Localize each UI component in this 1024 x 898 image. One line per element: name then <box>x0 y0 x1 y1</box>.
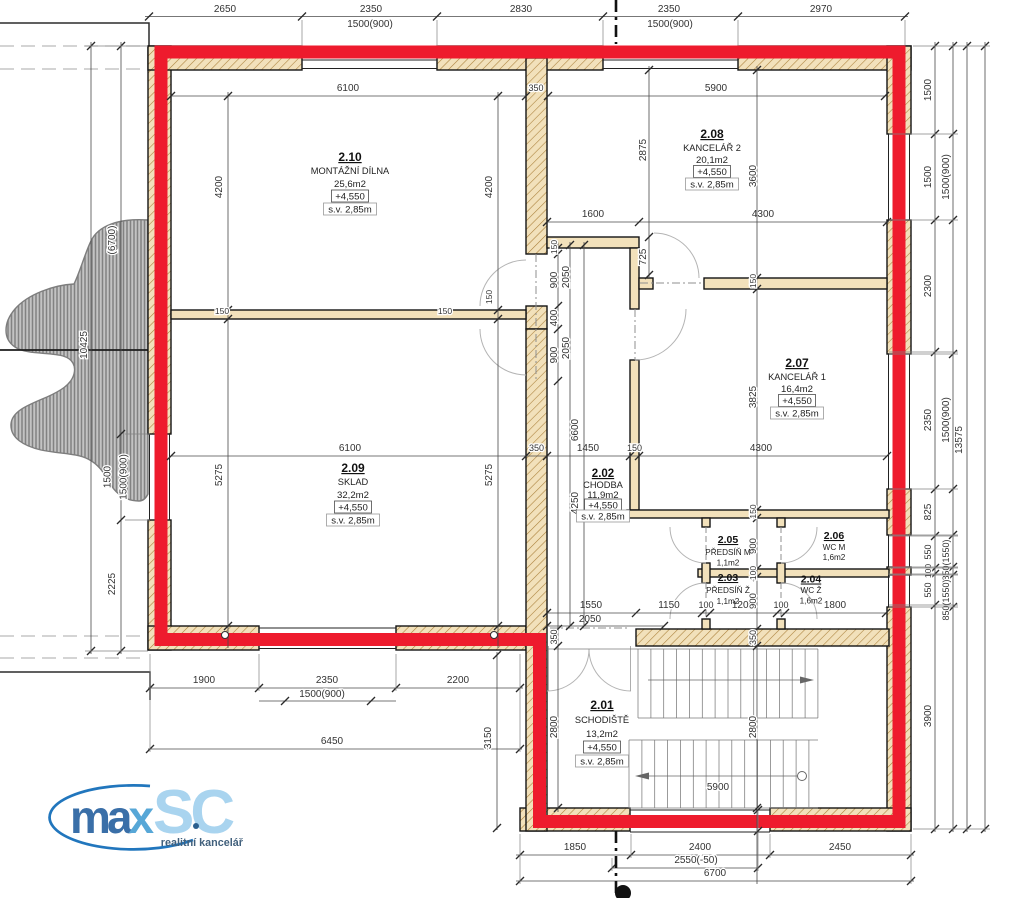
svg-text:max: max <box>70 791 154 843</box>
svg-text:s.v. 2,85m: s.v. 2,85m <box>581 512 625 523</box>
svg-text:1150: 1150 <box>658 600 680 611</box>
svg-text:1,1m2: 1,1m2 <box>717 559 740 568</box>
svg-text:850(1550): 850(1550) <box>941 539 951 580</box>
svg-text:2.06: 2.06 <box>824 530 845 542</box>
svg-text:1,6m2: 1,6m2 <box>823 553 846 562</box>
svg-text:725: 725 <box>638 248 649 265</box>
svg-text:s.v. 2,85m: s.v. 2,85m <box>328 205 372 216</box>
svg-text:550: 550 <box>923 544 933 559</box>
svg-text:WC Ž: WC Ž <box>801 585 822 595</box>
svg-text:13,2m2: 13,2m2 <box>586 729 618 740</box>
svg-text:2800: 2800 <box>748 715 759 738</box>
svg-text:400: 400 <box>549 309 560 326</box>
svg-text:1500(900): 1500(900) <box>941 397 952 443</box>
svg-text:2450: 2450 <box>829 842 852 853</box>
svg-text:2.10: 2.10 <box>338 150 362 164</box>
svg-text:150: 150 <box>215 306 229 316</box>
svg-text:1500(900): 1500(900) <box>347 19 393 30</box>
svg-text:MONTÁŽNÍ DÍLNA: MONTÁŽNÍ DÍLNA <box>311 166 390 176</box>
svg-text:+4,550: +4,550 <box>338 503 368 514</box>
svg-text:100: 100 <box>748 566 758 580</box>
svg-text:350: 350 <box>528 83 543 93</box>
svg-text:+4,550: +4,550 <box>697 167 727 178</box>
svg-text:2.09: 2.09 <box>341 461 365 475</box>
svg-text:1500: 1500 <box>923 78 934 101</box>
svg-text:32,2m2: 32,2m2 <box>337 490 369 501</box>
svg-text:2.05: 2.05 <box>718 534 739 546</box>
svg-text:2050: 2050 <box>579 614 602 625</box>
svg-text:1500(900): 1500(900) <box>941 154 952 200</box>
svg-text:+4,550: +4,550 <box>782 396 812 407</box>
svg-text:6700: 6700 <box>704 868 727 879</box>
svg-text:350: 350 <box>748 630 758 645</box>
svg-text:KANCELÁŘ 1: KANCELÁŘ 1 <box>768 372 826 382</box>
svg-text:150: 150 <box>627 443 642 453</box>
svg-text:100: 100 <box>698 600 713 610</box>
svg-text:100: 100 <box>923 564 933 578</box>
svg-text:2875: 2875 <box>638 138 649 161</box>
svg-text:1450: 1450 <box>577 443 600 454</box>
svg-text:2.04: 2.04 <box>801 574 822 586</box>
svg-text:PŘEDSÍŇ Ž: PŘEDSÍŇ Ž <box>706 585 750 595</box>
svg-text:6600: 6600 <box>570 418 581 441</box>
svg-text:1,6m2: 1,6m2 <box>800 597 823 606</box>
svg-text:1,1m2: 1,1m2 <box>717 597 740 606</box>
svg-text:6450: 6450 <box>321 736 344 747</box>
svg-text:16,4m2: 16,4m2 <box>781 384 813 395</box>
svg-text:10425: 10425 <box>79 331 90 359</box>
svg-text:KANCELÁŘ 2: KANCELÁŘ 2 <box>683 143 741 153</box>
svg-text:550: 550 <box>923 582 933 597</box>
svg-text:150: 150 <box>748 274 758 288</box>
svg-text:2550(-50): 2550(-50) <box>674 855 717 866</box>
svg-text:4200: 4200 <box>484 175 495 198</box>
svg-text:350: 350 <box>529 443 544 453</box>
svg-text:3900: 3900 <box>923 704 934 727</box>
svg-text:s.v. 2,85m: s.v. 2,85m <box>580 757 624 768</box>
svg-text:2.08: 2.08 <box>700 127 724 141</box>
svg-text:2800: 2800 <box>549 715 560 738</box>
svg-text:SCHODIŠTĚ: SCHODIŠTĚ <box>575 715 629 725</box>
svg-text:2300: 2300 <box>923 274 934 297</box>
svg-text:2200: 2200 <box>447 675 470 686</box>
svg-text:5275: 5275 <box>484 463 495 486</box>
svg-text:2225: 2225 <box>107 572 118 595</box>
svg-text:SKLAD: SKLAD <box>338 477 369 487</box>
svg-text:2650: 2650 <box>214 4 237 15</box>
svg-text:150: 150 <box>748 504 758 518</box>
svg-text:850(1550): 850(1550) <box>941 579 951 620</box>
svg-text:2.02: 2.02 <box>592 468 614 480</box>
svg-text:900: 900 <box>748 593 759 609</box>
svg-text:s.v. 2,85m: s.v. 2,85m <box>331 516 375 527</box>
svg-text:2.03: 2.03 <box>718 572 739 584</box>
svg-text:2970: 2970 <box>810 4 833 15</box>
svg-text:6100: 6100 <box>337 83 360 94</box>
svg-text:1550: 1550 <box>580 600 603 611</box>
svg-text:4300: 4300 <box>752 209 775 220</box>
svg-text:CHODBA: CHODBA <box>583 480 624 490</box>
svg-text:WC M: WC M <box>823 543 846 552</box>
svg-text:25,6m2: 25,6m2 <box>334 179 366 190</box>
svg-text:1800: 1800 <box>824 600 847 611</box>
svg-text:2050: 2050 <box>561 336 572 359</box>
svg-text:1500: 1500 <box>103 465 114 488</box>
svg-text:1500(900): 1500(900) <box>647 19 693 30</box>
svg-text:20,1m2: 20,1m2 <box>696 155 728 166</box>
svg-text:1500: 1500 <box>923 165 934 188</box>
svg-text:3600: 3600 <box>748 164 759 187</box>
svg-text:1500(900): 1500(900) <box>119 454 130 500</box>
svg-text:5275: 5275 <box>214 463 225 486</box>
svg-text:2350: 2350 <box>316 675 339 686</box>
svg-text:100: 100 <box>773 600 788 610</box>
svg-text:5900: 5900 <box>707 782 730 793</box>
svg-text:4300: 4300 <box>750 443 773 454</box>
svg-text:s.v. 2,85m: s.v. 2,85m <box>690 180 734 191</box>
svg-text:2.01: 2.01 <box>590 698 614 712</box>
svg-text:realitní kancelář: realitní kancelář <box>161 837 244 849</box>
svg-text:825: 825 <box>923 503 934 520</box>
svg-text:150: 150 <box>438 306 452 316</box>
svg-text:s.v. 2,85m: s.v. 2,85m <box>775 409 819 420</box>
svg-text:1500(900): 1500(900) <box>299 689 345 700</box>
svg-text:6100: 6100 <box>339 443 362 454</box>
svg-text:1600: 1600 <box>582 209 605 220</box>
svg-text:5900: 5900 <box>705 83 728 94</box>
svg-text:350: 350 <box>549 629 559 644</box>
svg-text:13575: 13575 <box>954 426 965 454</box>
svg-text:900: 900 <box>549 271 560 288</box>
svg-text:+4,550: +4,550 <box>587 743 617 754</box>
svg-text:1850: 1850 <box>564 842 587 853</box>
svg-text:PŘEDSÍŇ M: PŘEDSÍŇ M <box>705 547 751 557</box>
svg-text:3825: 3825 <box>748 385 759 408</box>
svg-text:3150: 3150 <box>483 726 494 749</box>
svg-text:2400: 2400 <box>689 842 712 853</box>
svg-text:2.07: 2.07 <box>785 356 809 370</box>
svg-text:150: 150 <box>484 290 494 304</box>
svg-text:2350: 2350 <box>658 4 681 15</box>
svg-text:900: 900 <box>549 346 560 363</box>
svg-text:2050: 2050 <box>561 265 572 288</box>
svg-text:4200: 4200 <box>214 175 225 198</box>
svg-text:2350: 2350 <box>923 408 934 431</box>
svg-text:+4,550: +4,550 <box>335 192 365 203</box>
svg-text:2350: 2350 <box>360 4 383 15</box>
svg-text:2830: 2830 <box>510 4 533 15</box>
svg-text:1900: 1900 <box>193 675 216 686</box>
svg-text:150: 150 <box>549 240 559 254</box>
svg-text:(6700): (6700) <box>107 226 118 255</box>
